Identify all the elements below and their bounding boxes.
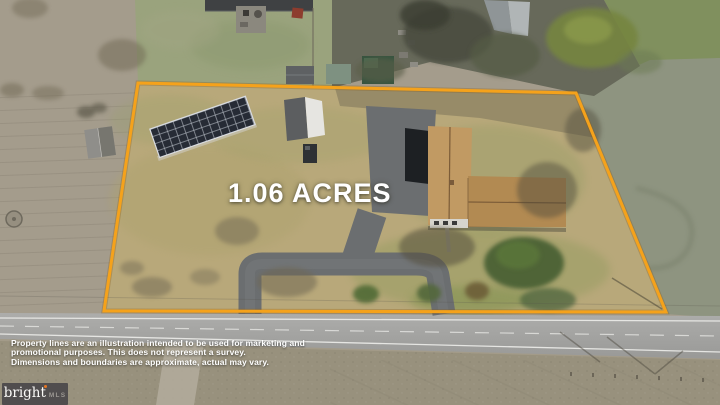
dark-roof-section xyxy=(405,128,429,184)
disclaimer-text: Property lines are an illustration inten… xyxy=(11,339,341,367)
brightmls-logo-suffix: MLS xyxy=(49,389,66,399)
red-play-structure xyxy=(292,8,304,19)
logo-flame-dot xyxy=(44,385,47,388)
aerial-property-photo: 1.06 ACRES Property lines are an illustr… xyxy=(0,0,720,405)
disclaimer-line-3: Dimensions and boundaries are approximat… xyxy=(11,358,341,367)
green-canopy xyxy=(326,64,351,84)
brightmls-logo-brand: bright xyxy=(4,387,46,401)
acreage-label: 1.06 ACRES xyxy=(228,178,388,209)
chimney xyxy=(449,180,454,185)
brightmls-logo: bright MLS xyxy=(2,383,68,405)
patio xyxy=(236,6,266,33)
